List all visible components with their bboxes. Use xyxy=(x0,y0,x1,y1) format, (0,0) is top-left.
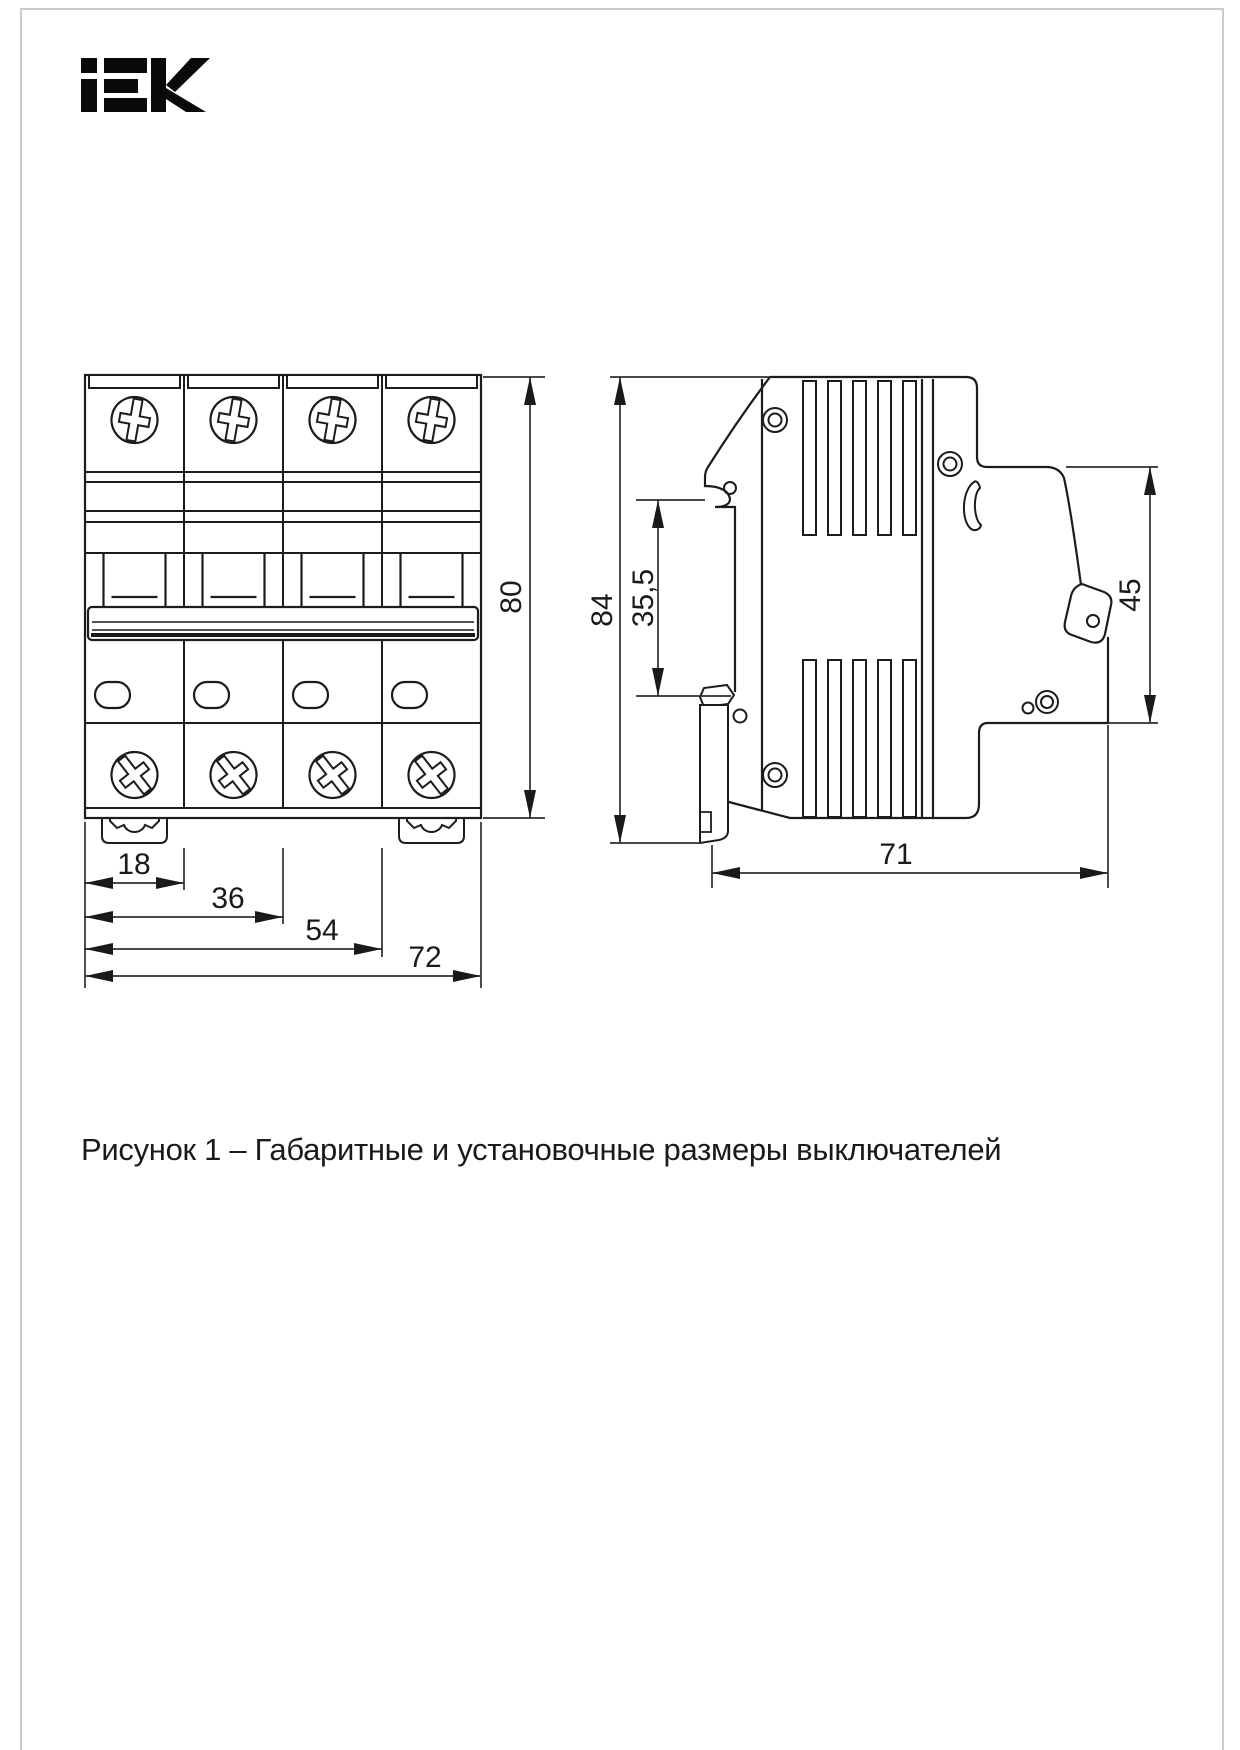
side-front-face xyxy=(705,377,770,692)
side-height-label: 84 xyxy=(586,593,619,626)
side-depth-label: 71 xyxy=(879,838,912,871)
iek-logo xyxy=(81,58,210,112)
toggle-tie-bar xyxy=(88,607,478,640)
front-width-1-label: 18 xyxy=(117,848,150,881)
din-clips-front xyxy=(102,818,464,843)
front-width-3-label: 54 xyxy=(305,914,338,947)
side-rail-offset-label: 35,5 xyxy=(627,569,660,627)
front-width-4-label: 72 xyxy=(408,941,441,974)
din-clip-side xyxy=(700,685,734,843)
terminal-lug xyxy=(1065,584,1112,643)
page: 18 36 54 72 80 xyxy=(0,0,1240,1750)
vent-slats xyxy=(803,381,916,817)
dimension-arrows xyxy=(85,377,536,982)
module-dividers xyxy=(184,375,382,808)
side-view xyxy=(700,377,1111,843)
indicator-windows xyxy=(95,682,427,708)
front-height-label: 80 xyxy=(495,580,528,613)
kidney-slot xyxy=(964,481,981,530)
technical-drawing: 18 36 54 72 80 xyxy=(0,0,1240,1750)
front-view xyxy=(85,375,481,843)
front-width-2-label: 36 xyxy=(211,882,244,915)
figure-caption: Рисунок 1 – Габаритные и установочные ра… xyxy=(81,1132,1001,1168)
side-terminal-span-label: 45 xyxy=(1114,578,1147,611)
page-border xyxy=(20,9,1224,1750)
